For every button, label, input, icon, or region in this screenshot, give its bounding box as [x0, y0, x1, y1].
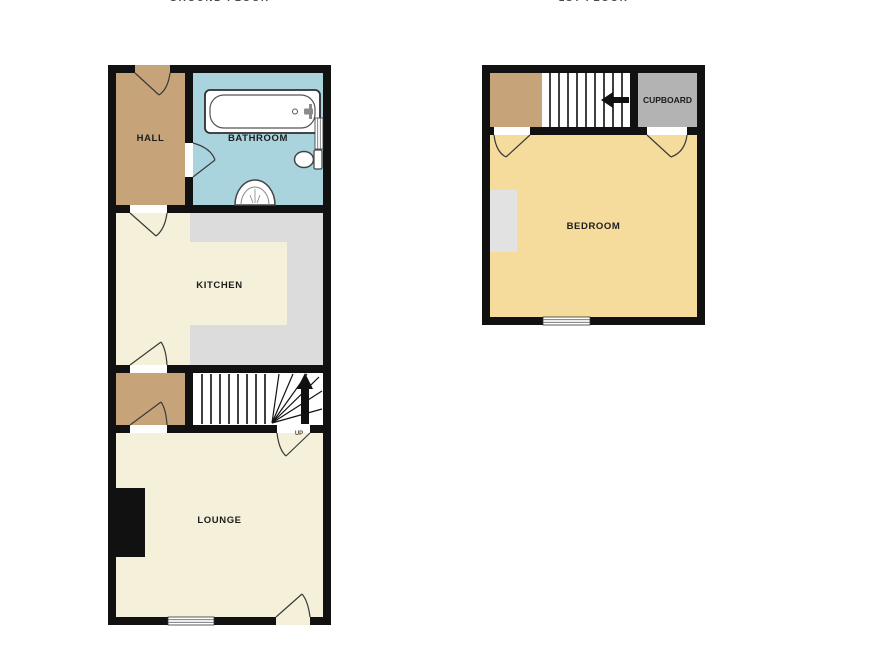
hall-kitchen-door-swing: [130, 213, 167, 236]
kitchen-label: KITCHEN: [116, 280, 323, 291]
kitchen-landing-door-swing: [130, 342, 167, 365]
sink: [235, 180, 275, 205]
toilet: [295, 150, 323, 169]
staircase-treads: [202, 374, 265, 424]
landing-lounge-door-swing: [130, 402, 167, 425]
first-floor-plan: BEDROOM CUPBOARD: [482, 65, 705, 325]
lounge-exit-opening: [276, 617, 310, 625]
ground-floor-caption: GROUND FLOOR: [108, 0, 331, 4]
front-door-swing: [135, 73, 170, 95]
bedroom-window: [543, 317, 590, 325]
lounge-exit-door-swing: [276, 594, 310, 617]
ground-floor-linework: [116, 73, 323, 617]
staircase-winder-fan: [272, 374, 322, 423]
bathtub: [205, 90, 320, 133]
bedroom-second-door-swing: [647, 135, 687, 157]
landing-bedroom-door-swing: [494, 135, 530, 157]
up-label: UP: [282, 431, 316, 437]
stairs-direction-arrow-icon: [601, 92, 629, 108]
lounge-label: LOUNGE: [116, 515, 323, 526]
first-floor-linework: [490, 73, 697, 317]
lounge-window: [168, 617, 214, 625]
bathroom-label: BATHROOM: [193, 133, 323, 144]
front-door-opening: [135, 65, 170, 73]
bedroom-label: BEDROOM: [490, 221, 697, 232]
hall-label: HALL: [116, 133, 185, 144]
ground-floor-plan: HALL BATHROOM KITCHEN LOUNGE UP: [108, 65, 331, 625]
first-floor-caption: 1ST FLOOR: [482, 0, 705, 4]
cupboard-label: CUPBOARD: [638, 95, 697, 105]
hall-bathroom-door-swing: [193, 143, 215, 177]
